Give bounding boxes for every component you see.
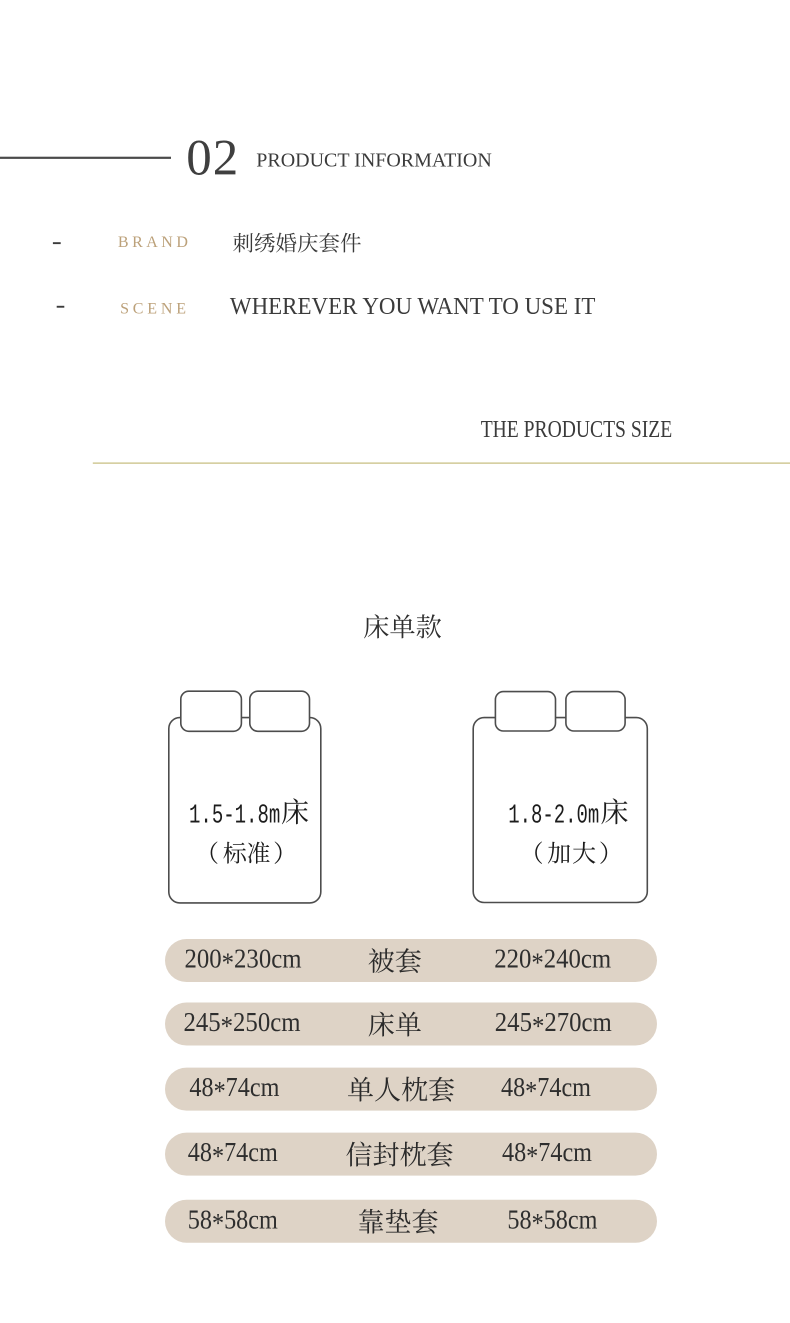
svg-text:BRAND: BRAND bbox=[118, 234, 192, 251]
svg-text:48*74cm: 48*74cm bbox=[501, 1072, 591, 1106]
svg-text:PRODUCT INFORMATION: PRODUCT INFORMATION bbox=[256, 149, 492, 171]
svg-text:245*250cm: 245*250cm bbox=[184, 1007, 301, 1041]
svg-text:THE PRODUCTS SIZE: THE PRODUCTS SIZE bbox=[481, 416, 673, 443]
svg-text:SCENE: SCENE bbox=[120, 300, 190, 317]
svg-text:1.5-1.8m: 1.5-1.8m bbox=[189, 801, 280, 831]
svg-text:1.8-2.0m: 1.8-2.0m bbox=[508, 801, 599, 831]
svg-text:48*74cm: 48*74cm bbox=[188, 1137, 278, 1171]
svg-text:02: 02 bbox=[186, 131, 239, 187]
svg-text:48*74cm: 48*74cm bbox=[502, 1137, 592, 1171]
svg-text:245*270cm: 245*270cm bbox=[495, 1007, 612, 1041]
svg-text:200*230cm: 200*230cm bbox=[185, 944, 302, 978]
svg-text:220*240cm: 220*240cm bbox=[494, 944, 611, 978]
svg-text:58*58cm: 58*58cm bbox=[507, 1204, 597, 1238]
svg-text:WHEREVER YOU WANT TO USE IT: WHEREVER YOU WANT TO USE IT bbox=[230, 293, 596, 320]
svg-text:58*58cm: 58*58cm bbox=[188, 1204, 278, 1238]
svg-text:48*74cm: 48*74cm bbox=[189, 1072, 279, 1106]
